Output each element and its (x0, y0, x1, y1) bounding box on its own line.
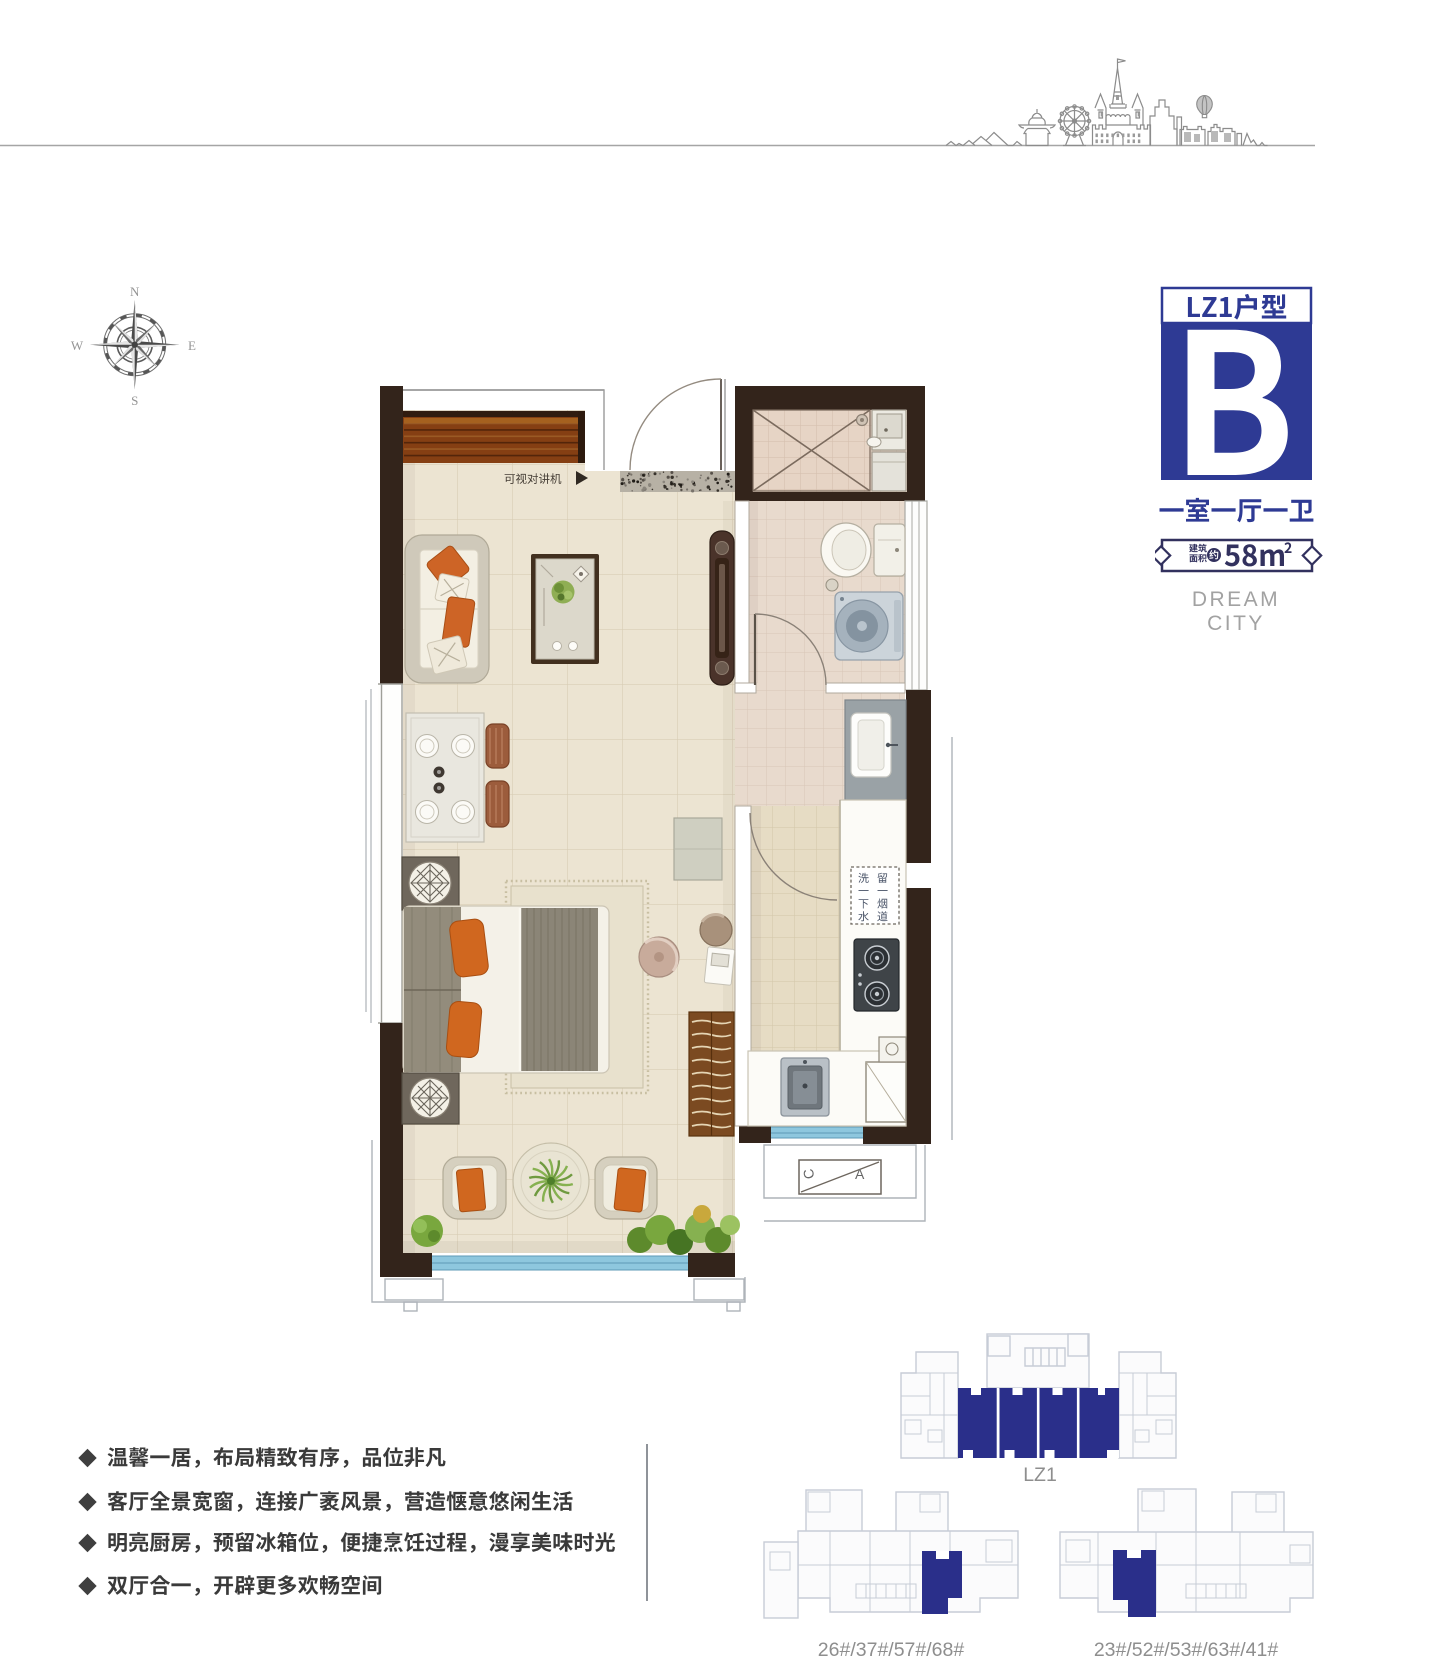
svg-text:26#/37#/57#/68#: 26#/37#/57#/68# (818, 1639, 965, 1661)
svg-text:N: N (130, 284, 140, 299)
svg-text:S: S (131, 393, 138, 408)
svg-text:W: W (71, 338, 84, 353)
svg-text:23#/52#/53#/63#/41#: 23#/52#/53#/63#/41# (1094, 1639, 1279, 1661)
svg-text:LZ1: LZ1 (1023, 1464, 1057, 1486)
svg-text:A: A (855, 1166, 865, 1182)
svg-text:E: E (188, 338, 196, 353)
